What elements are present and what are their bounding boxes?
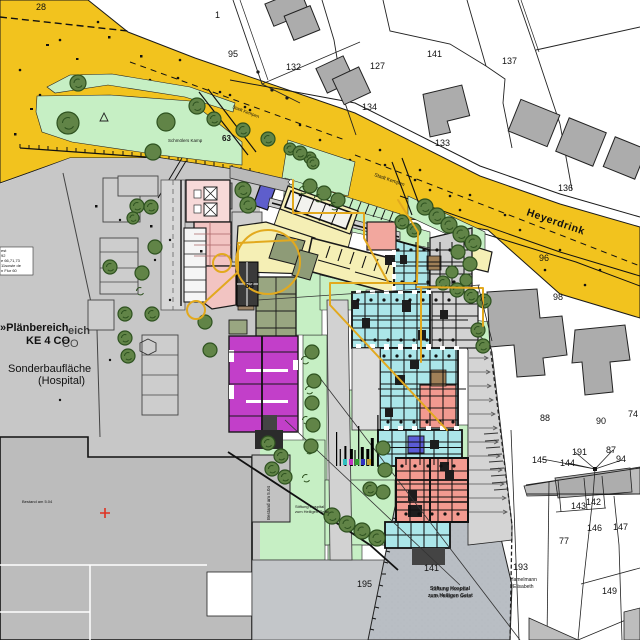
svg-text:149: 149	[602, 586, 617, 596]
svg-text:Bestand am 5.04: Bestand am 5.04	[22, 499, 53, 504]
svg-text:28: 28	[36, 2, 46, 12]
svg-text:Stiftung Hospital: Stiftung Hospital	[432, 587, 468, 593]
svg-text:63: 63	[222, 134, 231, 143]
svg-text:127: 127	[370, 61, 385, 71]
svg-text:133: 133	[435, 138, 450, 148]
svg-text:96: 96	[539, 253, 549, 263]
svg-text:136: 136	[558, 183, 573, 193]
svg-text:Elisabeth: Elisabeth	[513, 584, 534, 590]
svg-text:137: 137	[502, 56, 517, 66]
svg-text:193: 193	[513, 562, 528, 572]
svg-text:147: 147	[613, 522, 628, 532]
svg-text:Bestand am 5.04: Bestand am 5.04	[266, 485, 271, 520]
svg-text:74: 74	[628, 409, 638, 419]
svg-text:»Plänbereich: »Plänbereich	[0, 322, 69, 334]
svg-text:146: 146	[587, 523, 602, 533]
svg-text:eich: eich	[68, 325, 90, 337]
svg-text:145: 145	[532, 455, 547, 465]
svg-text:zum Heiligen Geist: zum Heiligen Geist	[430, 594, 473, 600]
svg-text:63: 63	[245, 281, 254, 290]
svg-text:143: 143	[571, 501, 586, 511]
svg-text:141: 141	[424, 563, 439, 573]
svg-text:77: 77	[559, 536, 569, 546]
svg-text:95: 95	[228, 49, 238, 59]
svg-text:Hamelmann: Hamelmann	[510, 577, 537, 583]
svg-text:141: 141	[427, 49, 442, 59]
svg-text:Schmölers Kamp: Schmölers Kamp	[168, 138, 203, 143]
svg-text:Sonderbaufläche: Sonderbaufläche	[8, 363, 91, 375]
svg-text:144: 144	[560, 458, 575, 468]
svg-text:94: 94	[616, 454, 626, 464]
svg-text:90: 90	[596, 416, 606, 426]
svg-text:132: 132	[286, 62, 301, 72]
svg-text:195: 195	[357, 579, 372, 589]
svg-text:98: 98	[553, 292, 563, 302]
svg-text:134: 134	[362, 102, 377, 112]
svg-text:n Flur 60: n Flur 60	[1, 268, 18, 273]
svg-text:142: 142	[586, 497, 601, 507]
svg-text:CO: CO	[62, 338, 79, 350]
svg-text:(Hospital): (Hospital)	[38, 375, 85, 387]
svg-text:1: 1	[215, 10, 220, 20]
svg-text:zum Heiligen Geist: zum Heiligen Geist	[295, 509, 329, 514]
svg-text:191: 191	[572, 447, 587, 457]
svg-text:88: 88	[540, 413, 550, 423]
svg-text:87: 87	[606, 445, 616, 455]
